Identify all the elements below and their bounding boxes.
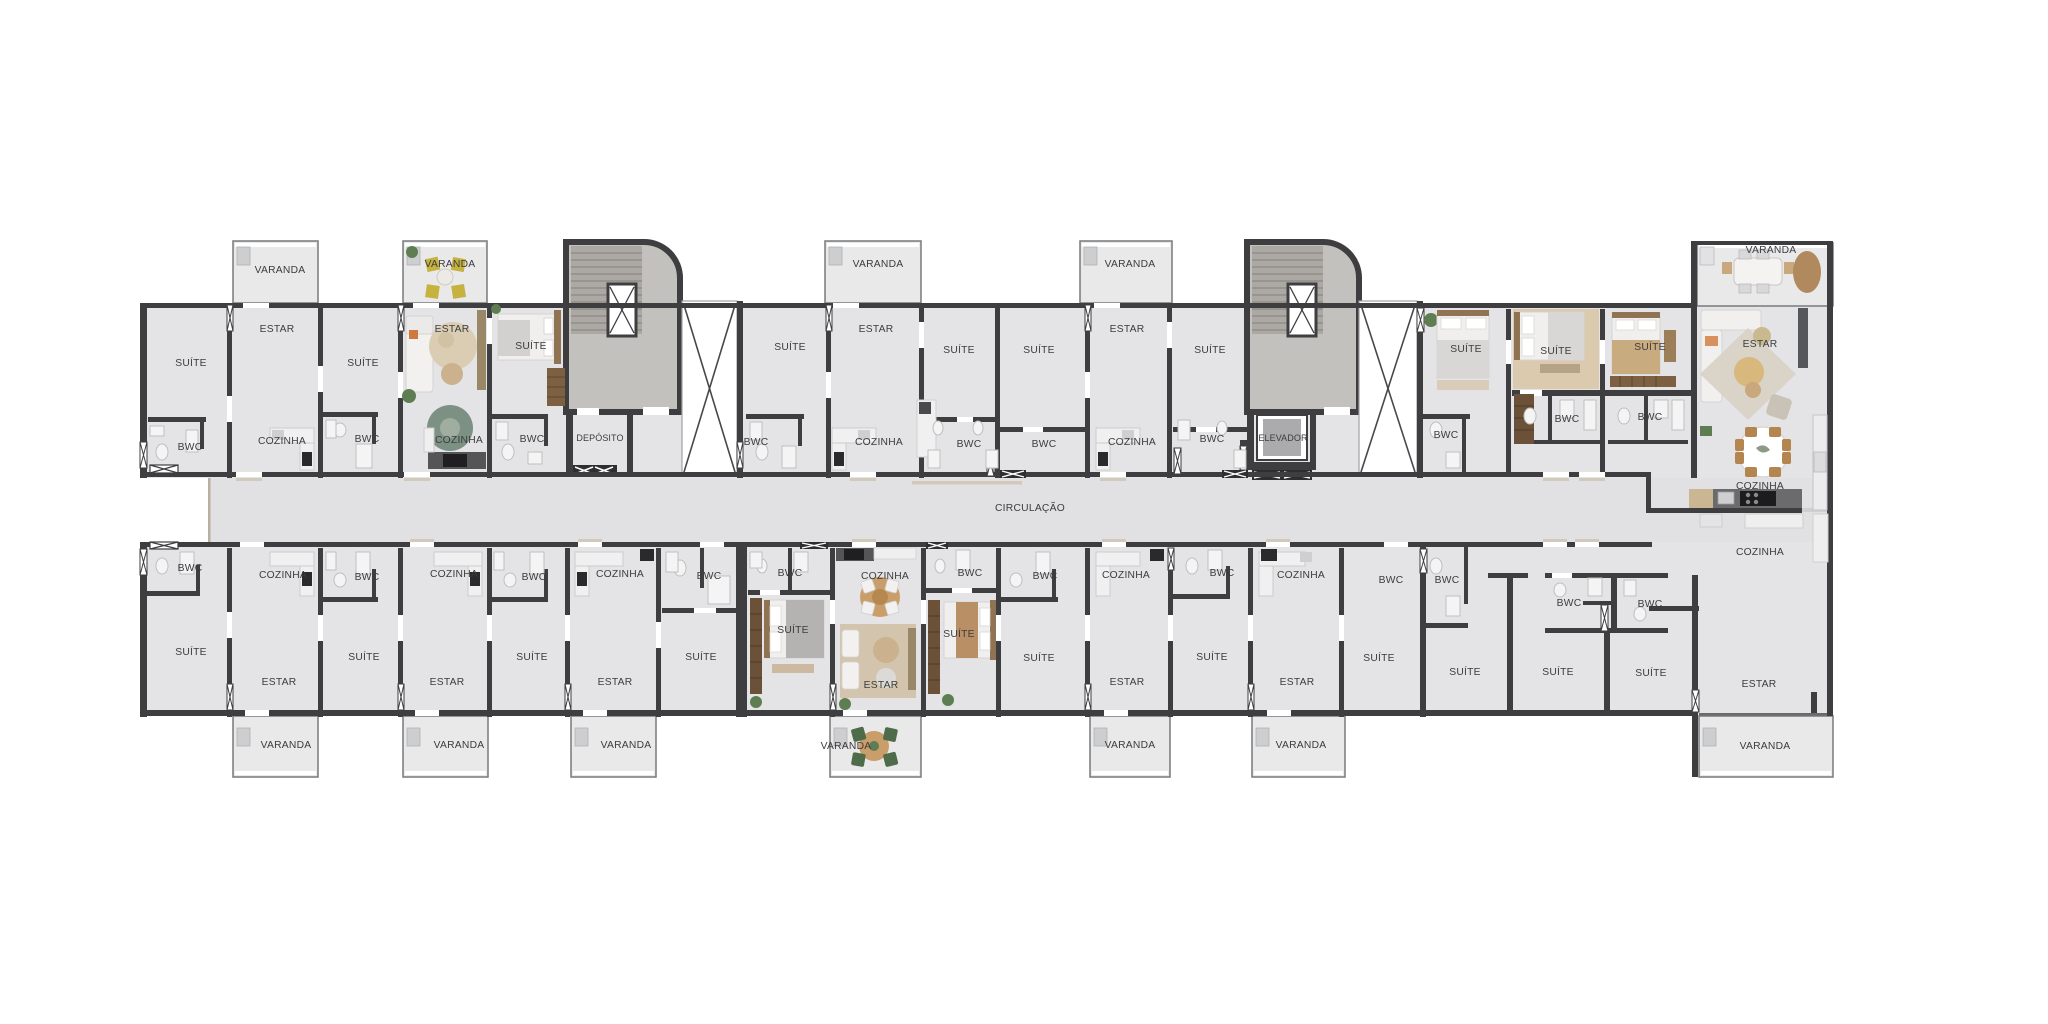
- svg-text:VARANDA: VARANDA: [1276, 740, 1327, 751]
- svg-text:COZINHA: COZINHA: [596, 569, 644, 580]
- svg-text:SUÍTE: SUÍTE: [1363, 651, 1395, 664]
- svg-text:SUÍTE: SUÍTE: [1540, 344, 1572, 357]
- svg-text:BWC: BWC: [1200, 434, 1225, 445]
- svg-text:VARANDA: VARANDA: [434, 740, 485, 751]
- svg-text:COZINHA: COZINHA: [435, 435, 483, 446]
- svg-text:SUÍTE: SUÍTE: [1450, 342, 1482, 355]
- svg-text:COZINHA: COZINHA: [861, 571, 909, 582]
- svg-text:BWC: BWC: [778, 568, 803, 579]
- svg-text:ESTAR: ESTAR: [859, 324, 894, 335]
- svg-text:BWC: BWC: [522, 572, 547, 583]
- svg-text:SUÍTE: SUÍTE: [1449, 665, 1481, 678]
- svg-text:COZINHA: COZINHA: [259, 570, 307, 581]
- svg-text:SUÍTE: SUÍTE: [685, 650, 717, 663]
- svg-text:SUÍTE: SUÍTE: [943, 627, 975, 640]
- svg-text:COZINHA: COZINHA: [1736, 481, 1784, 492]
- svg-text:SUÍTE: SUÍTE: [777, 623, 809, 636]
- svg-text:BWC: BWC: [957, 439, 982, 450]
- svg-text:COZINHA: COZINHA: [1277, 570, 1325, 581]
- svg-text:SUÍTE: SUÍTE: [1023, 651, 1055, 664]
- svg-text:SUÍTE: SUÍTE: [175, 645, 207, 658]
- svg-text:BWC: BWC: [1032, 439, 1057, 450]
- svg-text:COZINHA: COZINHA: [258, 436, 306, 447]
- svg-text:ESTAR: ESTAR: [1742, 679, 1777, 690]
- svg-text:VARANDA: VARANDA: [261, 740, 312, 751]
- svg-text:SUÍTE: SUÍTE: [347, 356, 379, 369]
- svg-text:ESTAR: ESTAR: [1280, 677, 1315, 688]
- svg-text:ELEVADOR: ELEVADOR: [1258, 433, 1308, 443]
- svg-text:BWC: BWC: [1638, 412, 1663, 423]
- svg-text:SUÍTE: SUÍTE: [1194, 343, 1226, 356]
- svg-text:VARANDA: VARANDA: [1105, 740, 1156, 751]
- svg-text:SUÍTE: SUÍTE: [515, 339, 547, 352]
- svg-text:VARANDA: VARANDA: [853, 259, 904, 270]
- svg-text:BWC: BWC: [520, 434, 545, 445]
- svg-text:VARANDA: VARANDA: [425, 259, 476, 270]
- svg-text:BWC: BWC: [1379, 575, 1404, 586]
- svg-text:BWC: BWC: [355, 434, 380, 445]
- svg-text:ESTAR: ESTAR: [1110, 677, 1145, 688]
- svg-text:SUÍTE: SUÍTE: [348, 650, 380, 663]
- svg-text:ESTAR: ESTAR: [262, 677, 297, 688]
- svg-text:BWC: BWC: [1210, 568, 1235, 579]
- svg-text:BWC: BWC: [1638, 599, 1663, 610]
- svg-text:ESTAR: ESTAR: [1743, 339, 1778, 350]
- svg-text:BWC: BWC: [355, 572, 380, 583]
- svg-text:BWC: BWC: [178, 563, 203, 574]
- svg-text:BWC: BWC: [958, 568, 983, 579]
- svg-text:VARANDA: VARANDA: [821, 741, 872, 752]
- svg-text:SUÍTE: SUÍTE: [943, 343, 975, 356]
- svg-text:SUÍTE: SUÍTE: [1196, 650, 1228, 663]
- svg-text:VARANDA: VARANDA: [255, 265, 306, 276]
- svg-text:DEPÓSITO: DEPÓSITO: [576, 433, 623, 443]
- svg-text:VARANDA: VARANDA: [1105, 259, 1156, 270]
- svg-text:SUÍTE: SUÍTE: [1634, 340, 1666, 353]
- svg-text:BWC: BWC: [1033, 571, 1058, 582]
- svg-text:ESTAR: ESTAR: [435, 324, 470, 335]
- svg-text:COZINHA: COZINHA: [855, 437, 903, 448]
- svg-text:COZINHA: COZINHA: [1108, 437, 1156, 448]
- svg-text:BWC: BWC: [697, 571, 722, 582]
- svg-text:BWC: BWC: [744, 437, 769, 448]
- svg-text:SUÍTE: SUÍTE: [516, 650, 548, 663]
- svg-text:BWC: BWC: [1557, 598, 1582, 609]
- svg-text:ESTAR: ESTAR: [598, 677, 633, 688]
- svg-text:SUÍTE: SUÍTE: [175, 356, 207, 369]
- svg-text:COZINHA: COZINHA: [1102, 570, 1150, 581]
- svg-text:COZINHA: COZINHA: [430, 569, 478, 580]
- svg-text:SUÍTE: SUÍTE: [1635, 666, 1667, 679]
- svg-text:SUÍTE: SUÍTE: [1542, 665, 1574, 678]
- svg-text:VARANDA: VARANDA: [601, 740, 652, 751]
- svg-text:ESTAR: ESTAR: [1110, 324, 1145, 335]
- svg-text:COZINHA: COZINHA: [1736, 547, 1784, 558]
- svg-text:CIRCULAÇÃO: CIRCULAÇÃO: [995, 501, 1065, 514]
- svg-text:VARANDA: VARANDA: [1740, 741, 1791, 752]
- svg-text:BWC: BWC: [1435, 575, 1460, 586]
- svg-text:BWC: BWC: [178, 442, 203, 453]
- svg-text:BWC: BWC: [1434, 430, 1459, 441]
- svg-text:SUÍTE: SUÍTE: [774, 340, 806, 353]
- svg-text:ESTAR: ESTAR: [260, 324, 295, 335]
- svg-text:SUÍTE: SUÍTE: [1023, 343, 1055, 356]
- svg-text:ESTAR: ESTAR: [864, 680, 899, 691]
- svg-text:ESTAR: ESTAR: [430, 677, 465, 688]
- svg-text:VARANDA: VARANDA: [1746, 245, 1797, 256]
- svg-text:BWC: BWC: [1555, 414, 1580, 425]
